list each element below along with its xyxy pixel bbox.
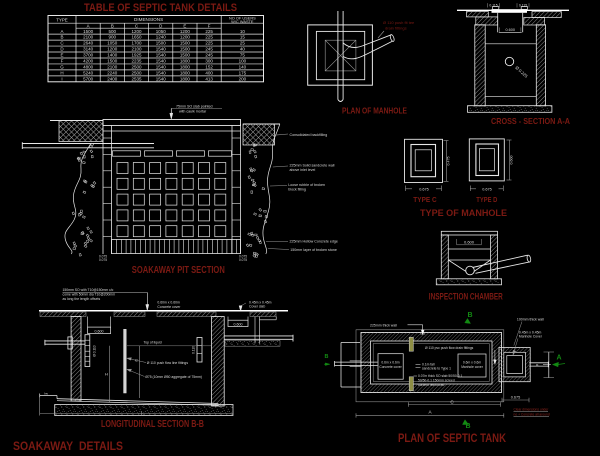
svg-text:INSPECTION CHAMBER: INSPECTION CHAMBER — [429, 292, 503, 302]
svg-text:TABLE OF SEPTIC TANK DETAILS: TABLE OF SEPTIC TANK DETAILS — [84, 2, 237, 14]
svg-text:W/C WASTE: W/C WASTE — [231, 19, 254, 24]
svg-text:225: 225 — [205, 41, 213, 46]
svg-text:1500: 1500 — [107, 59, 118, 64]
svg-text:E: E — [183, 24, 186, 29]
svg-text:A: A — [87, 24, 90, 29]
svg-text:1700: 1700 — [131, 41, 142, 46]
svg-text:2100: 2100 — [131, 47, 142, 52]
svg-text:D: D — [159, 24, 162, 29]
svg-text:75: 75 — [240, 53, 246, 58]
svg-text:245: 245 — [205, 47, 213, 52]
svg-text:2100: 2100 — [107, 64, 118, 69]
svg-text:4800: 4800 — [83, 64, 94, 69]
svg-text:A: A — [556, 355, 561, 362]
svg-text:B: B — [467, 312, 472, 319]
svg-text:225mm thick wall: 225mm thick wall — [370, 323, 397, 327]
svg-text:F: F — [61, 59, 64, 64]
svg-text:1200: 1200 — [131, 29, 142, 34]
svg-text:1050: 1050 — [107, 41, 118, 46]
svg-text:1800: 1800 — [180, 64, 191, 69]
svg-text:3140: 3140 — [83, 47, 94, 52]
svg-text:LONGITUDINAL SECTION B-B: LONGITUDINAL SECTION B-B — [101, 419, 204, 430]
svg-text:1925: 1925 — [131, 53, 142, 58]
svg-text:5700: 5700 — [83, 76, 94, 81]
svg-text:sandcrete to Type 1: sandcrete to Type 1 — [422, 367, 451, 371]
svg-text:Manhole Cover: Manhole Cover — [519, 335, 543, 339]
svg-text:1800: 1800 — [180, 59, 191, 64]
svg-text:TYPE D: TYPE D — [476, 197, 497, 204]
svg-text:B: B — [111, 24, 114, 29]
svg-text:4200: 4200 — [83, 59, 94, 64]
svg-text:Inv: Inv — [44, 392, 49, 396]
svg-text:Clear dimensions under: Clear dimensions under — [514, 408, 550, 412]
svg-text:150mm layer of broken stone: 150mm layer of broken stone — [290, 248, 337, 252]
svg-text:225mm Hollow Concrete edge: 225mm Hollow Concrete edge — [290, 240, 338, 244]
svg-text:100mm thick wall: 100mm thick wall — [517, 318, 544, 322]
svg-text:0.075: 0.075 — [239, 258, 247, 262]
svg-text:SOAKAWAY PIT SECTION: SOAKAWAY PIT SECTION — [132, 265, 225, 276]
svg-text:Concrete cover: Concrete cover — [157, 305, 181, 309]
svg-text:500: 500 — [109, 29, 117, 34]
svg-text:H: H — [105, 372, 108, 377]
svg-text:2400: 2400 — [107, 76, 118, 81]
svg-text:2240: 2240 — [107, 70, 118, 75]
svg-text:25: 25 — [240, 41, 246, 46]
svg-text:TYPE: TYPE — [56, 18, 68, 23]
svg-text:Ø 110 push flow line fittings: Ø 110 push flow line fittings — [147, 361, 189, 365]
svg-text:1500: 1500 — [180, 47, 191, 52]
svg-text:0.600: 0.600 — [464, 240, 475, 245]
svg-text:1540: 1540 — [156, 70, 167, 75]
svg-text:Ø 110 push fit tee: Ø 110 push fit tee — [383, 20, 415, 25]
svg-text:40: 40 — [240, 47, 246, 52]
svg-text:1240: 1240 — [156, 35, 167, 40]
svg-text:413: 413 — [205, 76, 213, 81]
svg-text:I: I — [61, 76, 62, 81]
svg-text:0.675: 0.675 — [511, 396, 521, 400]
svg-text:TYPE C: TYPE C — [413, 197, 436, 204]
svg-text:1540: 1540 — [156, 76, 167, 81]
svg-text:1540: 1540 — [156, 47, 167, 52]
svg-text:1200: 1200 — [180, 29, 191, 34]
svg-text:Manhole cover: Manhole cover — [461, 365, 484, 369]
svg-text:152: 152 — [205, 64, 213, 69]
svg-text:1500: 1500 — [156, 41, 167, 46]
svg-text:10: 10 — [240, 29, 246, 34]
svg-text:2235: 2235 — [131, 59, 142, 64]
svg-text:245: 245 — [205, 53, 213, 58]
svg-text:TYPE OF MANHOLE: TYPE OF MANHOLE — [420, 208, 507, 219]
svg-text:0.110: 0.110 — [192, 346, 196, 354]
svg-text:2500: 2500 — [131, 70, 142, 75]
svg-text:225: 225 — [205, 35, 213, 40]
svg-text:G: G — [60, 64, 64, 69]
svg-text:0.675: 0.675 — [482, 188, 492, 192]
svg-text:Loose rubble of broken: Loose rubble of broken — [288, 183, 325, 187]
svg-text:1540: 1540 — [156, 64, 167, 69]
svg-text:1400: 1400 — [107, 53, 118, 58]
svg-text:PLAN OF SEPTIC TANK: PLAN OF SEPTIC TANK — [398, 433, 507, 445]
svg-text:1200: 1200 — [107, 47, 118, 52]
svg-text:0.600: 0.600 — [509, 156, 513, 165]
svg-text:come with 50mm dia T10@200mm: come with 50mm dia T10@200mm — [63, 293, 116, 297]
svg-text:2500: 2500 — [131, 64, 142, 69]
svg-text:with caulk mortar: with caulk mortar — [179, 109, 207, 113]
svg-text:C: C — [135, 24, 138, 29]
svg-text:1500: 1500 — [180, 41, 191, 46]
svg-text:1200: 1200 — [180, 35, 191, 40]
svg-text:0.675: 0.675 — [419, 188, 429, 192]
svg-text:1800: 1800 — [180, 70, 191, 75]
svg-text:300: 300 — [205, 59, 213, 64]
svg-text:block filling: block filling — [288, 188, 306, 192]
svg-text:140: 140 — [239, 64, 247, 69]
svg-text:75mm SO slab pointed: 75mm SO slab pointed — [176, 104, 213, 108]
svg-text:400: 400 — [205, 70, 213, 75]
svg-text:above inlet level: above inlet level — [290, 168, 316, 172]
svg-text:1500: 1500 — [83, 29, 94, 34]
svg-text:H: H — [60, 70, 63, 75]
svg-text:0.600: 0.600 — [95, 329, 104, 333]
svg-text:1800: 1800 — [180, 76, 191, 81]
svg-text:1540: 1540 — [156, 59, 167, 64]
svg-text:150mm SO with T10@150mm c/c: 150mm SO with T10@150mm c/c — [63, 288, 114, 292]
svg-text:0.475: 0.475 — [447, 157, 451, 166]
svg-text:drain fittings: drain fittings — [385, 26, 407, 31]
svg-text:Cover slab: Cover slab — [249, 305, 265, 309]
svg-text:2100: 2100 — [83, 35, 94, 40]
svg-text:F: F — [208, 24, 211, 29]
svg-text:Concrete cover: Concrete cover — [379, 365, 402, 369]
svg-text:175: 175 — [239, 70, 247, 75]
svg-text:Top of liquid: Top of liquid — [144, 341, 162, 345]
svg-text:A: A — [60, 29, 63, 34]
svg-text:900: 900 — [109, 35, 117, 40]
svg-text:3700: 3700 — [83, 53, 94, 58]
svg-text:CROSS - SECTION A-A: CROSS - SECTION A-A — [491, 116, 570, 126]
svg-text:Ø75 (10mm Ø50 aggregate of 75m: Ø75 (10mm Ø50 aggregate of 75mm) — [145, 375, 202, 379]
svg-text:0.600: 0.600 — [234, 322, 243, 326]
svg-text:200: 200 — [239, 76, 247, 81]
svg-text:1500: 1500 — [180, 53, 191, 58]
svg-text:1050: 1050 — [156, 29, 167, 34]
svg-text:B: B — [325, 354, 329, 360]
svg-text:no + Concrete all around: no + Concrete all around — [514, 412, 550, 416]
svg-text:content reinforced: content reinforced — [418, 383, 445, 387]
svg-text:B: B — [60, 35, 63, 40]
svg-text:1540: 1540 — [156, 53, 167, 58]
svg-text:0.600: 0.600 — [505, 28, 515, 32]
svg-text:E: E — [60, 53, 63, 58]
svg-text:DIMENSIONS: DIMENSIONS — [134, 17, 163, 22]
svg-text:225mm Solid sandcrete wall: 225mm Solid sandcrete wall — [290, 164, 335, 168]
svg-text:0.075: 0.075 — [99, 258, 107, 262]
svg-text:5240: 5240 — [83, 70, 94, 75]
svg-text:SOAKAWAY DETAILS: SOAKAWAY DETAILS — [13, 441, 123, 453]
svg-text:2535: 2535 — [131, 76, 142, 81]
svg-text:Ø 110 pvc push flow drain fitt: Ø 110 pvc push flow drain fittings — [425, 346, 474, 350]
svg-text:PLAN OF MANHOLE: PLAN OF MANHOLE — [342, 105, 407, 115]
svg-text:1650: 1650 — [131, 35, 142, 40]
svg-text:Ø 0.110: Ø 0.110 — [93, 345, 97, 356]
svg-text:2640: 2640 — [83, 41, 94, 46]
svg-text:100: 100 — [239, 59, 247, 64]
svg-text:15: 15 — [240, 35, 246, 40]
svg-text:as long the length offsets: as long the length offsets — [63, 297, 101, 301]
svg-text:225: 225 — [205, 29, 213, 34]
svg-text:Consolidated backfilling: Consolidated backfilling — [290, 133, 328, 137]
